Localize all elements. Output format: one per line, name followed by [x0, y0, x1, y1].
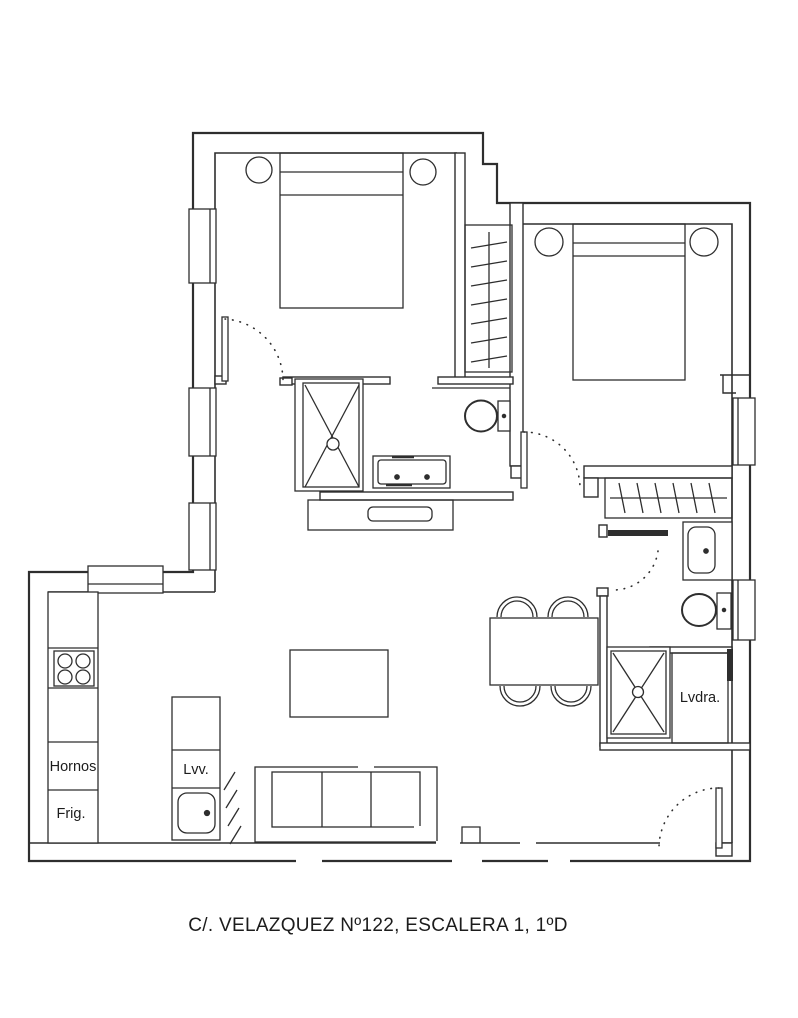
window-left-2: [189, 388, 216, 456]
watermark-gaps: [292, 765, 570, 864]
wall-nib-bath1: [280, 378, 292, 385]
window-right-1: [733, 398, 755, 465]
floor-plan-page: Hornos Frig. Lvv. Lvdra. C/. VELAZQUEZ N…: [0, 0, 798, 1018]
wardrobe-icon: [605, 478, 732, 518]
coffee-table-icon: [290, 650, 388, 717]
wall-stub-shelf: [599, 525, 607, 537]
bedroom-2: [521, 224, 718, 488]
door-swing-icon: [659, 788, 719, 848]
wall-bedroom1-east: [455, 153, 465, 383]
wall-stub-bath2-door: [584, 478, 598, 497]
bathroom-1: [295, 379, 510, 530]
hatch-marks: [224, 772, 241, 844]
bed-icon: [280, 153, 403, 308]
bed-icon: [573, 224, 685, 380]
door-swing-icon: [521, 432, 580, 488]
shower-icon: [295, 379, 363, 491]
nightstand-icon: [690, 228, 718, 256]
chair-icon: [551, 686, 591, 706]
dining-table-icon: [490, 618, 598, 685]
living-room: [255, 650, 480, 843]
wall-bath1-top-right: [438, 377, 513, 384]
chair-icon: [497, 597, 537, 617]
wall-bedroom2-south-right: [584, 466, 732, 478]
window-kitchen: [88, 566, 163, 593]
wall-step-bedroom2: [720, 375, 750, 393]
console-cabinet: [308, 500, 453, 530]
door-leaf: [716, 788, 722, 848]
nightstand-icon: [535, 228, 563, 256]
toilet-icon: [465, 401, 510, 432]
laundry-label: Lvdra.: [680, 690, 720, 706]
wall-bump: [462, 827, 480, 843]
window-left-3: [189, 503, 216, 570]
door-swing-icon: [222, 317, 283, 381]
sofa-icon: [255, 767, 437, 842]
ovens-label: Hornos: [50, 759, 97, 775]
nightstand-icon: [410, 159, 436, 185]
windows: [88, 209, 755, 640]
wall-bath1-bottom: [320, 492, 513, 500]
fridge-label: Frig.: [57, 806, 86, 822]
sink-icon: [683, 522, 732, 580]
chair-icon: [500, 686, 540, 706]
walls: [29, 133, 750, 861]
chair-icon: [548, 597, 588, 617]
dining-area: [490, 597, 598, 706]
double-vanity-icon: [373, 456, 450, 488]
window-right-2: [733, 580, 755, 640]
door-swing-icon: [614, 551, 658, 590]
wall-cap-hall: [597, 588, 608, 596]
bedroom-1: [222, 153, 512, 388]
dishwasher-label: Lvv.: [183, 762, 209, 778]
wall-hall-east: [600, 596, 607, 746]
wall-hall-bottom: [600, 743, 750, 750]
toilet-icon: [682, 593, 731, 629]
shower-icon: [607, 647, 670, 738]
nightstand-icon: [246, 157, 272, 183]
window-left-1: [189, 209, 216, 283]
plan-caption: C/. VELAZQUEZ Nº122, ESCALERA 1, 1ºD: [188, 915, 567, 936]
shelf-bar: [608, 530, 668, 536]
entrance-door: [659, 788, 722, 848]
floor-plan-svg: Hornos Frig. Lvv. Lvdra. C/. VELAZQUEZ N…: [0, 0, 798, 1018]
wardrobe-icon: [465, 225, 512, 372]
